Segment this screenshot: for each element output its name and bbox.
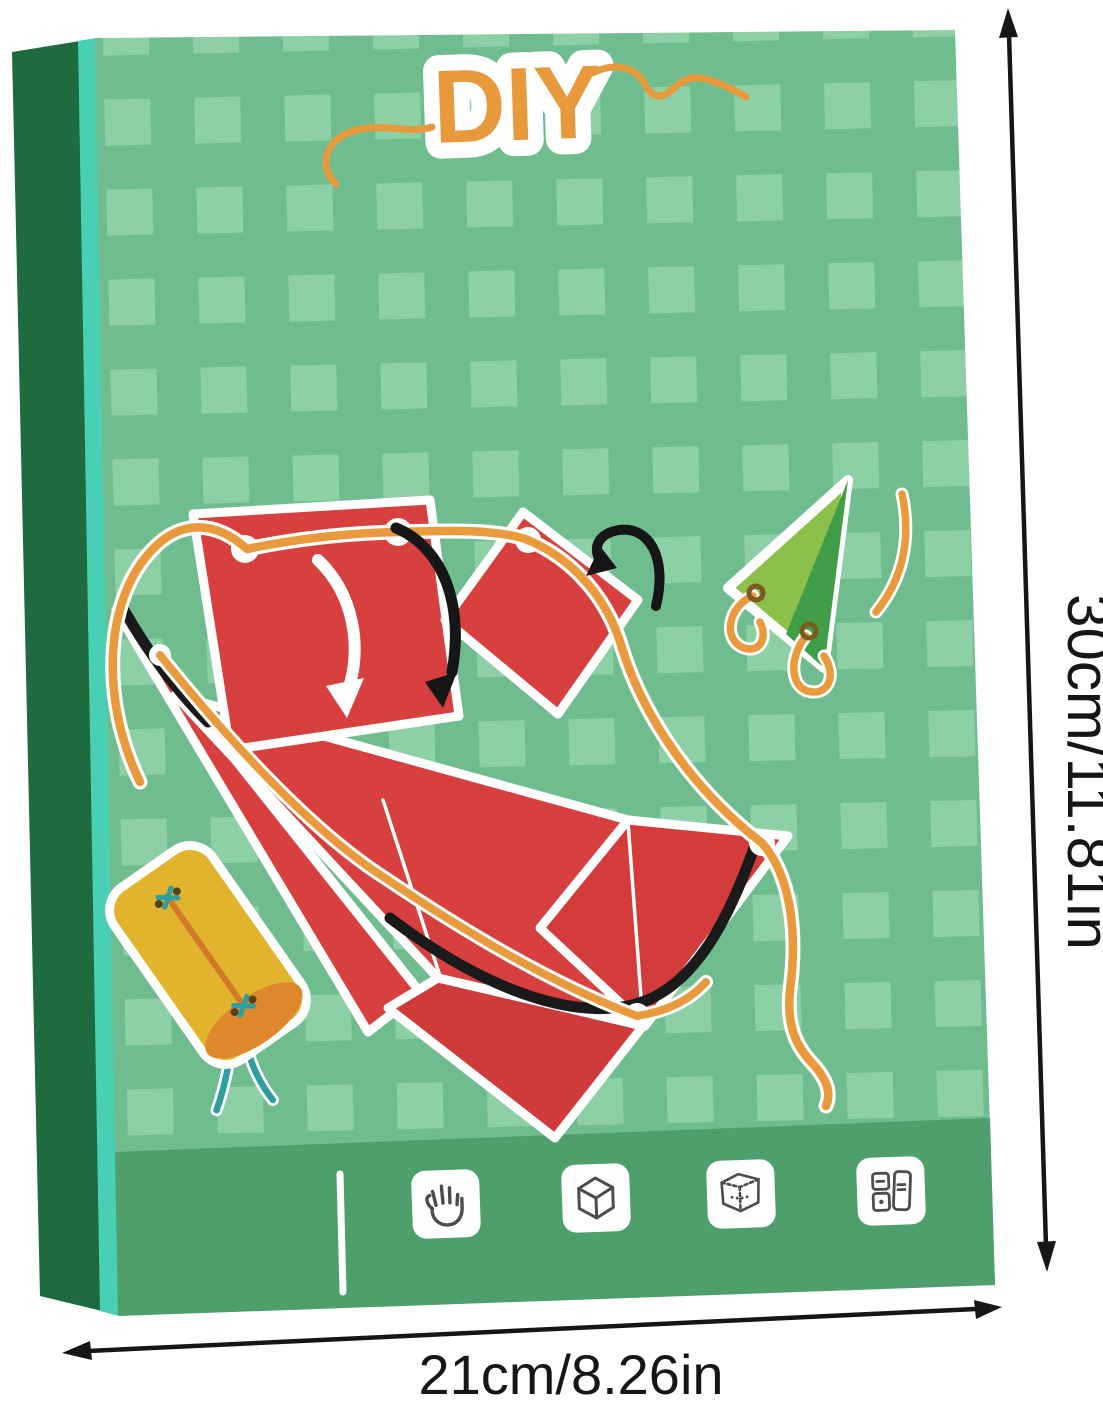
product-image: DIY: [0, 0, 1103, 1402]
width-arrowhead-right: [974, 1300, 1002, 1319]
height-dimension: 30cm/11.81in: [999, 8, 1103, 1272]
height-arrowhead-bottom: [1037, 1241, 1056, 1272]
height-arrowhead-top: [999, 8, 1018, 38]
scene: DIY: [0, 0, 1103, 1402]
cards-icon: [856, 1156, 926, 1226]
diy-logo-text: DIY: [431, 44, 603, 166]
width-dimension: 21cm/8.26in: [62, 1300, 1002, 1402]
width-arrowhead-left: [62, 1341, 92, 1360]
hand-icon: [411, 1169, 481, 1239]
footer-divider: [340, 1174, 343, 1292]
height-label: 30cm/11.81in: [1055, 594, 1103, 950]
cube-icon: [561, 1163, 631, 1233]
cube-dashed-icon: [706, 1159, 776, 1229]
width-label: 21cm/8.26in: [418, 1343, 723, 1402]
height-arrow-line: [1009, 34, 1046, 1246]
